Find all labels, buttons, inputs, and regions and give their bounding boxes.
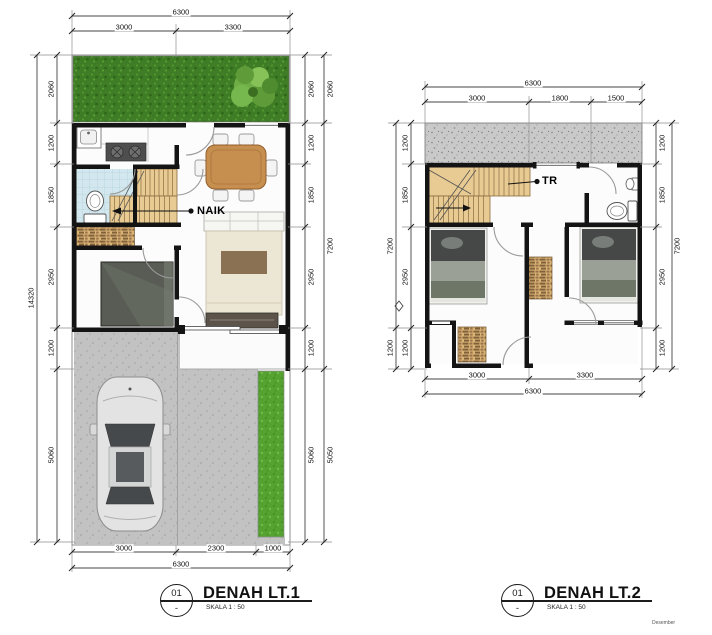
p2-dim-right-s1: 1200 (658, 134, 666, 153)
p2-dim-top-total: 6300 (524, 79, 543, 87)
p2-dim-bottom-seg2: 3300 (576, 371, 595, 379)
p2-dim-right-s3: 2950 (658, 268, 666, 287)
p1-dim-top-seg2: 3300 (224, 23, 243, 31)
p1-dim-outer3: 5050 (326, 446, 334, 465)
p2-shelf (458, 327, 486, 362)
p1-garden (73, 56, 289, 122)
p2-dim-left-outer: 7200 (386, 237, 394, 256)
p1-dim-bottom-seg2: 2300 (207, 544, 226, 552)
p2-dim-left-outer-extra: 1200 (386, 339, 394, 358)
p1-dim-bottom-seg1: 3000 (115, 544, 134, 552)
p1-bedroom-bed-icon (101, 262, 173, 326)
p1-ref-bubble: 01 - (160, 584, 193, 617)
p1-window (245, 124, 278, 128)
sink-icon-2 (626, 178, 638, 190)
p2-dim-bottom-total: 6300 (524, 387, 543, 395)
p1-dim-right-s4: 2950 (307, 268, 315, 287)
p1-dim-top-total: 6300 (172, 8, 191, 16)
p1-dim-right-s5: 1200 (307, 339, 315, 358)
p2-bed-left-icon (429, 228, 487, 304)
p2-dim-left-s3: 2950 (401, 268, 409, 287)
p2-dim-right-outer: 7200 (673, 237, 681, 256)
p1-dim-right-s1: 2060 (307, 80, 315, 99)
p2-ref-bubble: 01 - (501, 584, 534, 617)
p1-terrace (180, 332, 286, 369)
p1-dim-left-s2: 1200 (47, 134, 55, 153)
p2-dim-left-s2: 1850 (401, 186, 409, 205)
p1-dim-left-s1: 2060 (47, 80, 55, 99)
p1-side-garden (258, 371, 284, 537)
p1-dim-left-s4: 2950 (47, 268, 55, 287)
p2-ref-dash: - (516, 603, 519, 614)
p2-dim-top-seg2: 1800 (551, 94, 570, 102)
p1-dim-outer2: 7200 (326, 237, 334, 256)
p1-dim-bottom-total: 6300 (172, 560, 191, 568)
p1-ref-number: 01 (171, 588, 182, 599)
p2-ref-number: 01 (512, 588, 523, 599)
p1-dim-outer1: 2060 (326, 80, 334, 99)
p1-dim-right-s2: 1200 (307, 134, 315, 153)
p2-dim-top-seg1: 3000 (468, 94, 487, 102)
p1-title: DENAH LT.1 (203, 584, 300, 603)
corner-note: Desember (652, 620, 675, 626)
toilet-icon-2 (607, 201, 637, 221)
plan1-drawing (72, 55, 290, 545)
p1-dim-left-s6: 5060 (47, 446, 55, 465)
p1-dim-right-s6: 5060 (307, 446, 315, 465)
p1-dim-left-s3: 1850 (47, 186, 55, 205)
p1-dim-bottom-seg3: 1000 (264, 544, 283, 552)
p1-cabinet (77, 227, 135, 246)
p2-roof-band (425, 123, 642, 163)
p1-stairs-up-label: NAIK (197, 205, 226, 217)
stove-icon (106, 143, 146, 161)
p2-scale: SKALA 1 : 50 (547, 604, 586, 611)
p1-master-bed-icon (204, 212, 284, 328)
floor-plan-drawing (0, 0, 712, 635)
p2-wardrobe (529, 257, 552, 299)
p2-dim-left-s1: 1200 (401, 134, 409, 153)
p2-dim-right-s4: 1200 (658, 339, 666, 358)
p1-dim-top-seg1: 3000 (115, 23, 134, 31)
kitchen-sink-icon (77, 126, 101, 148)
p1-dim-right-s3: 1850 (307, 186, 315, 205)
p1-dim-left-s5: 1200 (47, 339, 55, 358)
p2-bed-right-icon (580, 227, 638, 303)
car-icon (90, 377, 170, 531)
p2-dim-left-s4: 1200 (401, 339, 409, 358)
plan2-drawing (425, 123, 643, 368)
p2-stairs-up-label: TR (542, 175, 557, 187)
p1-scale: SKALA 1 : 50 (206, 604, 245, 611)
p2-title: DENAH LT.2 (544, 584, 641, 603)
p2-dim-top-seg3: 1500 (607, 94, 626, 102)
floor-plan-sheet: 6300 3000 3300 14320 2060 1200 1850 2950… (0, 0, 712, 635)
p1-ref-dash: - (175, 603, 178, 614)
p2-dim-bottom-seg1: 3000 (468, 371, 487, 379)
p1-dim-side-total: 14320 (27, 287, 35, 310)
p2-dim-right-s2: 1850 (658, 186, 666, 205)
